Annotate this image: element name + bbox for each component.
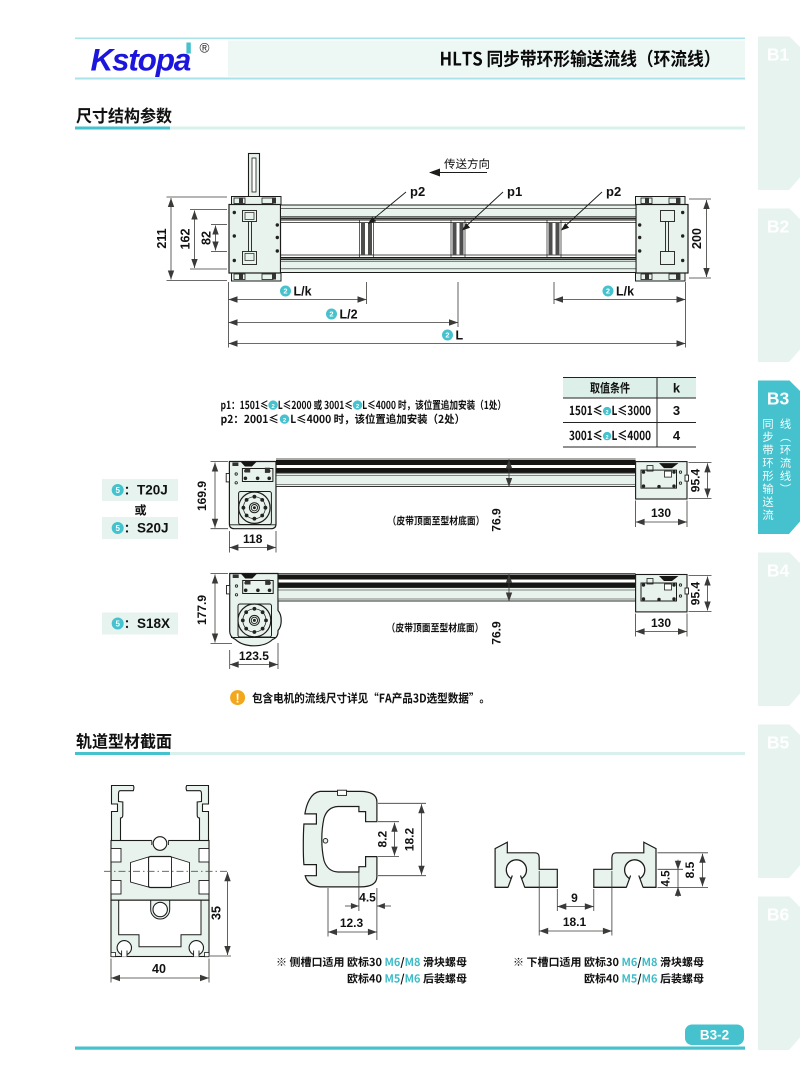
svg-text:p2: p2: [410, 184, 425, 199]
svg-text:2: 2: [606, 435, 609, 441]
svg-text:169.9: 169.9: [195, 481, 209, 511]
svg-text:p2: p2: [606, 184, 621, 199]
svg-text:!: !: [236, 691, 240, 705]
svg-text:3: 3: [673, 403, 680, 418]
svg-text:130: 130: [651, 506, 671, 520]
svg-text:162: 162: [179, 229, 193, 250]
svg-text:4.5: 4.5: [661, 870, 673, 887]
svg-text:95.4: 95.4: [689, 468, 703, 492]
svg-text:B3-2: B3-2: [700, 1028, 729, 1043]
svg-text:211: 211: [155, 228, 169, 248]
svg-text:B4: B4: [767, 561, 790, 581]
svg-text:B1: B1: [767, 45, 790, 65]
svg-text:T20J: T20J: [137, 483, 168, 498]
svg-text:4.5: 4.5: [359, 891, 376, 905]
svg-text:2: 2: [283, 287, 287, 296]
svg-text:18.2: 18.2: [403, 827, 417, 851]
svg-text:B3: B3: [767, 389, 790, 409]
svg-text:8.5: 8.5: [683, 861, 697, 878]
svg-text:76.9: 76.9: [490, 508, 504, 532]
svg-text:123.5: 123.5: [239, 649, 269, 663]
svg-text:5: 5: [115, 619, 120, 628]
svg-text:2: 2: [329, 310, 333, 319]
svg-text:4: 4: [673, 428, 681, 443]
svg-text:S20J: S20J: [137, 521, 169, 536]
svg-text:p1: p1: [507, 184, 522, 199]
svg-text:L/2: L/2: [340, 308, 358, 322]
svg-text:L/k: L/k: [616, 285, 634, 299]
svg-text:B2: B2: [767, 217, 790, 237]
svg-text:177.9: 177.9: [195, 595, 209, 625]
svg-text:L/k: L/k: [294, 285, 312, 299]
svg-text:118: 118: [243, 532, 263, 546]
svg-text:12.3: 12.3: [340, 916, 364, 930]
svg-text:B6: B6: [767, 905, 790, 925]
svg-text:5: 5: [115, 486, 120, 495]
svg-text:L: L: [456, 329, 464, 343]
svg-text:2: 2: [606, 410, 609, 416]
svg-text:Kstopa: Kstopa: [91, 42, 191, 78]
svg-text:18.1: 18.1: [563, 915, 587, 929]
svg-text:40: 40: [152, 962, 166, 976]
svg-text:®: ®: [200, 41, 210, 56]
svg-text:2: 2: [445, 331, 449, 340]
svg-text:130: 130: [651, 616, 671, 630]
svg-text:95.4: 95.4: [689, 581, 703, 605]
svg-text:8.2: 8.2: [376, 831, 390, 848]
svg-text:k: k: [673, 381, 681, 396]
svg-text:S18X: S18X: [137, 616, 170, 631]
svg-text:200: 200: [690, 228, 704, 249]
svg-text:B5: B5: [767, 733, 790, 753]
svg-text:5: 5: [115, 524, 120, 533]
svg-text:9: 9: [571, 891, 578, 905]
svg-text:35: 35: [210, 906, 224, 920]
svg-text:2: 2: [606, 287, 610, 296]
svg-text:76.9: 76.9: [490, 621, 504, 645]
svg-text:82: 82: [200, 231, 214, 245]
